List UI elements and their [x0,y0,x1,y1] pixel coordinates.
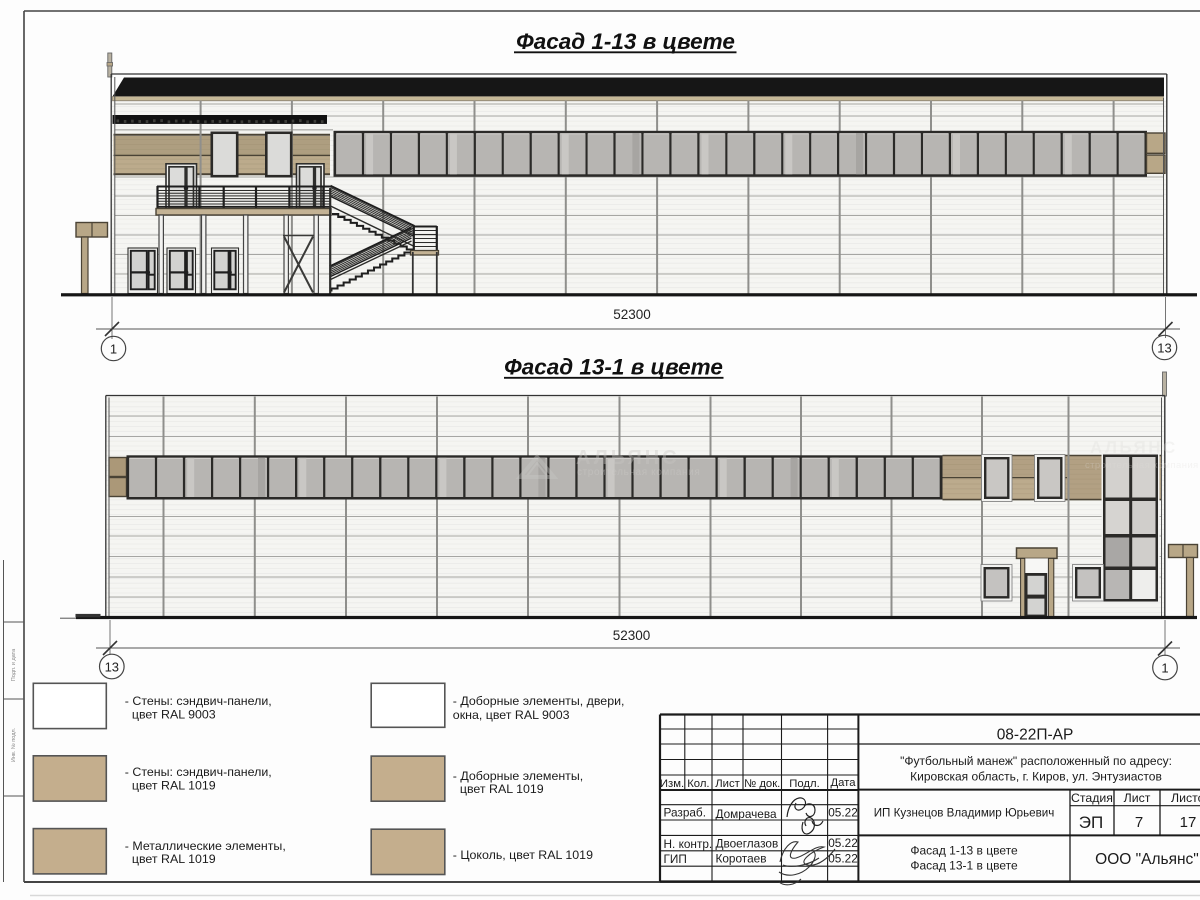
svg-text:1: 1 [110,341,117,356]
svg-text:ГИП: ГИП [664,852,687,866]
svg-text:Н. контр.: Н. контр. [664,837,713,851]
svg-text:Разраб.: Разраб. [664,806,706,820]
svg-text:Листов: Листов [1171,791,1200,805]
svg-text:Дата: Дата [830,777,856,789]
svg-text:Изм.: Изм. [660,778,684,790]
svg-text:Стадия: Стадия [1071,791,1113,805]
svg-text:08-22П-АР: 08-22П-АР [997,727,1074,744]
svg-text:- Цоколь, цвет RAL 1019: - Цоколь, цвет RAL 1019 [453,848,593,862]
svg-text:цвет RAL 1019: цвет RAL 1019 [132,852,216,866]
svg-text:05.22: 05.22 [828,806,858,820]
svg-text:7: 7 [1135,814,1143,831]
svg-text:Инв. № подл.: Инв. № подл. [11,727,17,762]
svg-text:Кировская область, г. Киров, у: Кировская область, г. Киров, ул. Энтузиа… [910,770,1162,784]
svg-text:- Металлические элементы,: - Металлические элементы, [125,839,286,853]
svg-text:13: 13 [105,660,119,675]
svg-text:ООО "Альянс": ООО "Альянс" [1095,851,1199,868]
svg-text:Лист: Лист [715,778,740,790]
svg-text:цвет RAL 1019: цвет RAL 1019 [460,782,544,796]
svg-text:№ док.: № док. [744,778,780,790]
svg-text:АЛЬЯНС: АЛЬЯНС [1090,438,1178,457]
svg-text:Фасад 13-1 в цвете: Фасад 13-1 в цвете [910,859,1018,873]
svg-text:окна, цвет RAL 9003: окна, цвет RAL 9003 [453,708,570,722]
svg-text:- Стены: сэндвич-панели,: - Стены: сэндвич-панели, [125,765,272,779]
svg-text:17: 17 [1180,814,1197,831]
svg-text:13: 13 [1157,340,1171,355]
svg-text:Кол.: Кол. [687,778,709,790]
svg-text:Подл.: Подл. [789,778,819,790]
svg-text:1: 1 [1161,661,1168,676]
svg-text:Двоеглазов: Двоеглазов [716,837,779,851]
svg-text:Лист: Лист [1124,791,1151,805]
svg-text:АЛЬЯНС: АЛЬЯНС [576,447,680,469]
svg-text:Домрачева: Домрачева [716,807,777,821]
svg-text:"Футбольный манеж" расположенн: "Футбольный манеж" расположенный по адре… [900,754,1172,768]
svg-text:строительная компания: строительная компания [577,467,700,478]
svg-text:- Стены: сэндвич-панели,: - Стены: сэндвич-панели, [125,694,272,708]
svg-text:Коротаев: Коротаев [716,852,767,866]
svg-text:ИП Кузнецов Владимир Юрьевич: ИП Кузнецов Владимир Юрьевич [874,807,1055,820]
svg-text:ЭП: ЭП [1079,813,1103,832]
svg-text:цвет RAL 9003: цвет RAL 9003 [132,708,216,722]
svg-text:05.22: 05.22 [828,852,858,866]
svg-text:Фасад 1-13 в цвете: Фасад 1-13 в цвете [910,844,1018,858]
svg-text:- Доборные элементы, двери,: - Доборные элементы, двери, [453,694,625,708]
svg-text:52300: 52300 [613,307,651,322]
svg-text:05.22: 05.22 [828,836,858,850]
svg-text:Фасад 1-13 в цвете: Фасад 1-13 в цвете [516,29,735,54]
svg-text:Подп. и дата: Подп. и дата [11,648,17,681]
svg-text:- Доборные элементы,: - Доборные элементы, [453,769,583,783]
svg-text:52300: 52300 [613,628,651,643]
svg-text:строительная компания: строительная компания [1085,460,1199,471]
svg-text:цвет RAL 1019: цвет RAL 1019 [132,779,216,793]
svg-text:Фасад 13-1 в цвете: Фасад 13-1 в цвете [504,355,723,380]
